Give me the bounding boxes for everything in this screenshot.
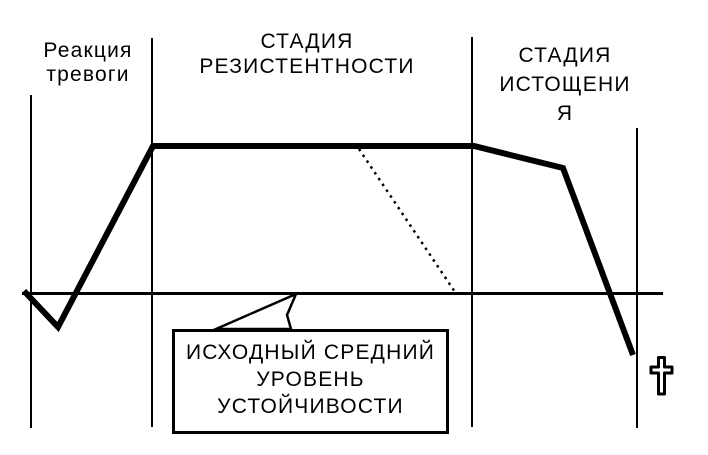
callout-line2: УРОВЕНЬ <box>175 366 446 393</box>
resistance-stage-line2: РЕЗИСТЕНТНОСТИ <box>176 54 438 79</box>
baseline-callout-box: ИСХОДНЫЙ СРЕДНИЙ УРОВЕНЬ УСТОЙЧИВОСТИ <box>172 329 449 434</box>
latin-cross-glyph <box>648 355 674 397</box>
callout-line1: ИСХОДНЫЙ СРЕДНИЙ <box>175 339 446 366</box>
callout-line3: УСТОЙЧИВОСТИ <box>175 393 446 420</box>
gas-diagram: Реакция тревоги СТАДИЯ РЕЗИСТЕНТНОСТИ СТ… <box>0 0 708 455</box>
alarm-stage-line1: Реакция <box>26 39 150 63</box>
exhaustion-stage-line3: Я <box>476 99 654 128</box>
exhaustion-stage-line2: ИСТОЩЕНИ <box>476 70 654 99</box>
callout-pointer <box>216 294 296 329</box>
exhaustion-stage-line1: СТАДИЯ <box>476 41 654 70</box>
alarm-stage-line2: тревоги <box>26 63 150 87</box>
resistance-curve <box>24 146 633 355</box>
death-cross-icon <box>648 355 674 397</box>
exhaustion-stage-label: СТАДИЯ ИСТОЩЕНИ Я <box>476 41 654 128</box>
alarm-stage-label: Реакция тревоги <box>26 39 150 87</box>
resistance-stage-label: СТАДИЯ РЕЗИСТЕНТНОСТИ <box>176 29 438 79</box>
resistance-stage-line1: СТАДИЯ <box>176 29 438 54</box>
projected-decline-dotted <box>359 149 455 292</box>
